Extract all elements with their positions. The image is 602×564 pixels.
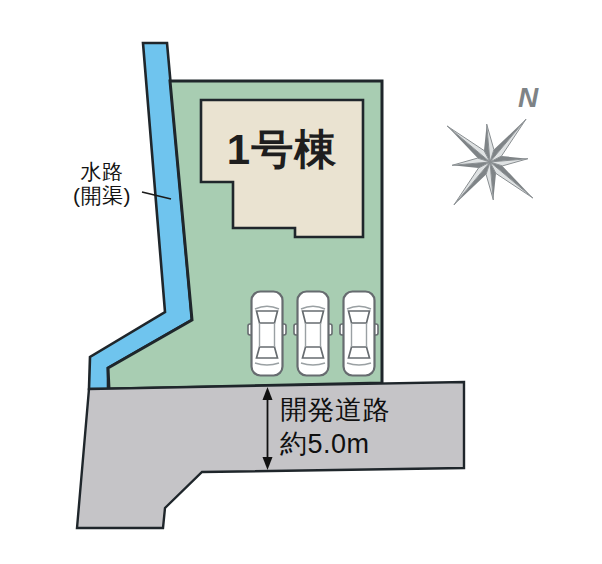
car-icon	[340, 292, 378, 376]
site-plan: 水路 (開渠) 1号棟 開発道路 約5.0m N	[0, 0, 602, 564]
road-shape	[77, 382, 464, 528]
road-label: 開発道路 約5.0m	[280, 394, 390, 462]
waterway-label-line2: (開渠)	[54, 184, 150, 208]
waterway-label: 水路 (開渠)	[54, 160, 150, 207]
compass-rose-icon	[447, 119, 533, 205]
site-plan-drawing	[0, 0, 602, 564]
road-label-line2: 約5.0m	[280, 428, 390, 462]
waterway-label-line1: 水路	[54, 160, 150, 184]
car-icon	[294, 292, 332, 376]
building-label: 1号棟	[201, 122, 363, 178]
car-icon	[248, 292, 286, 376]
compass-north-label: N	[518, 82, 538, 114]
road-label-line1: 開発道路	[280, 394, 390, 428]
